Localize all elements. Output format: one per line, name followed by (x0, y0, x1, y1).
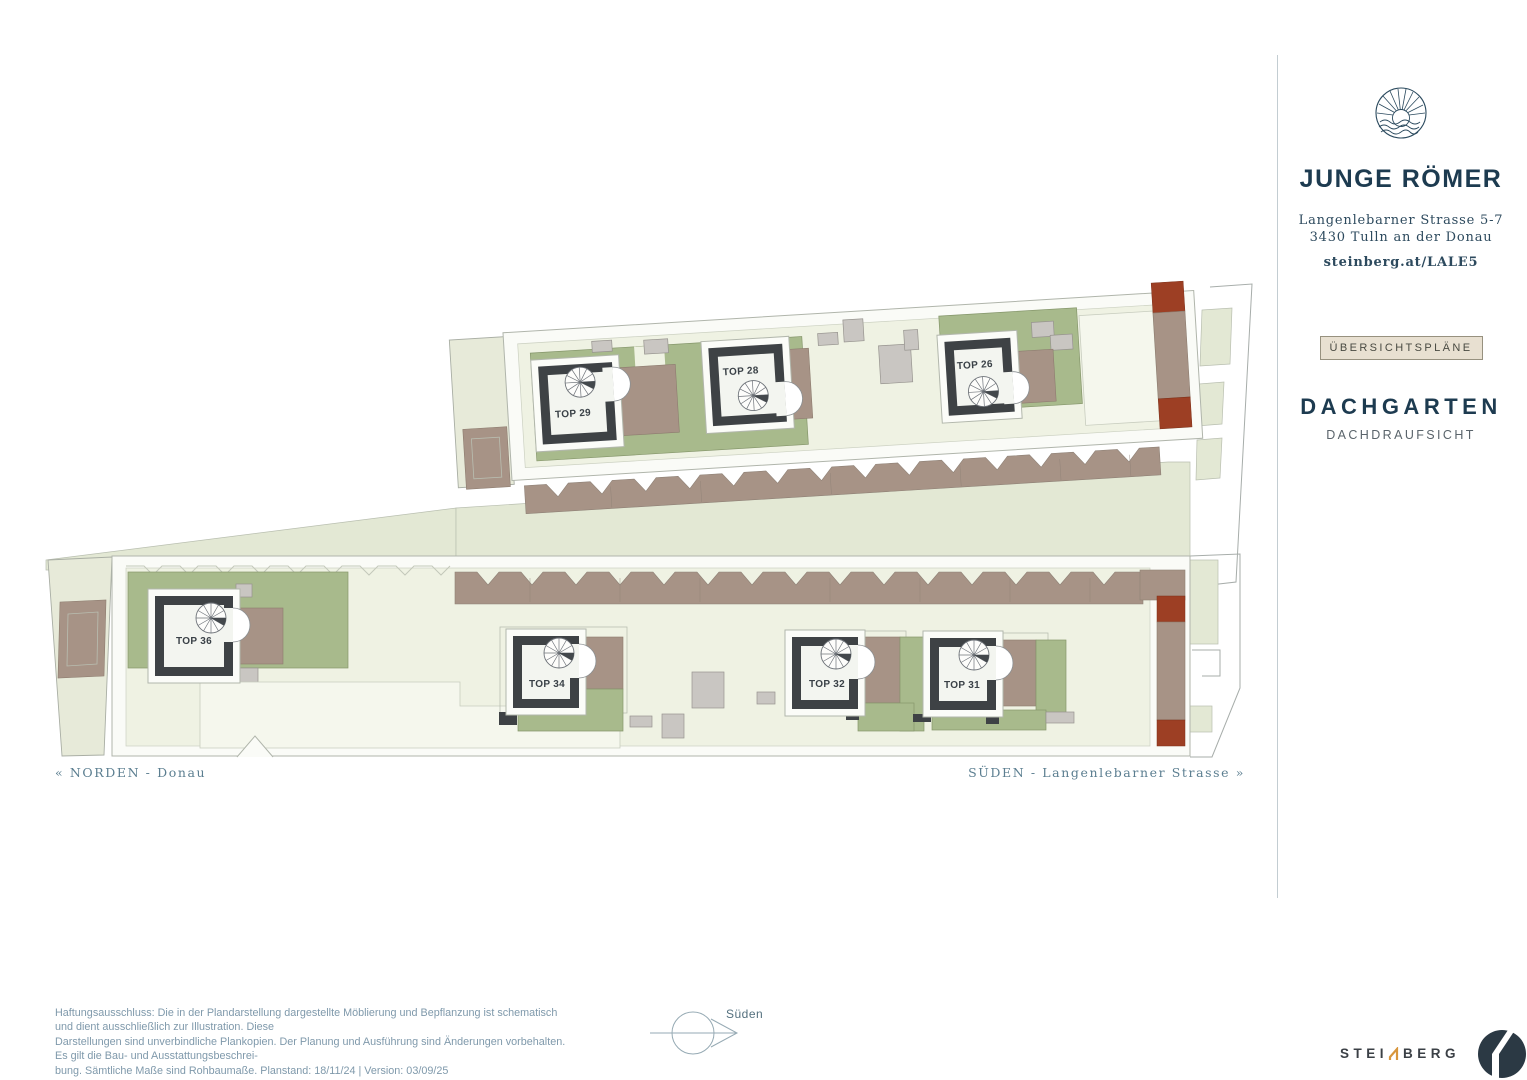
unit-label: TOP 28 (723, 365, 760, 378)
floor-plan-area: TOP 29 TOP 28 TOP 26 (0, 0, 1277, 1080)
page-title: DACHGARTEN (1295, 394, 1507, 420)
disclaimer-line: Darstellungen sind unverbindliche Planko… (55, 1035, 575, 1064)
stairhouse-top31: TOP 31 (923, 631, 1013, 717)
sidebar: JUNGE RÖMER Langenlebarner Strasse 5-7 3… (1295, 80, 1507, 442)
brand-name: JUNGE RÖMER (1295, 165, 1507, 194)
stairhouse-top28: TOP 28 (701, 336, 804, 434)
address-line-2: 3430 Tulln an der Donau (1295, 229, 1507, 246)
spiral-stair-icon (196, 603, 226, 633)
roof-garden-top32 (858, 703, 914, 731)
junge-roemer-logo (1295, 80, 1507, 146)
overview-plans-badge[interactable]: ÜBERSICHTSPLÄNE (1320, 336, 1483, 360)
page-subtitle: DACHDRAUFSICHT (1295, 428, 1507, 442)
direction-label-north: « NORDEN - Donau (55, 765, 206, 780)
disclaimer: Haftungsausschluss: Die in der Plandarst… (55, 1006, 575, 1078)
sidebar-divider (1277, 55, 1278, 898)
chimney (1158, 397, 1192, 429)
stairhouse-top26: TOP 26 (937, 330, 1031, 423)
chimney (1157, 596, 1185, 622)
steinberg-circle-icon (1476, 1028, 1527, 1080)
spiral-stair-icon (959, 640, 989, 670)
steinberg-n-icon (1388, 1047, 1401, 1061)
stairhouse-top36: TOP 36 (148, 589, 250, 683)
unit-label: TOP 32 (809, 679, 845, 690)
floor-plan-drawing: TOP 29 TOP 28 TOP 26 (0, 0, 1277, 1080)
stairhouse-top29: TOP 29 (531, 354, 634, 452)
unit-label: TOP 26 (957, 359, 994, 372)
stairhouse-top32: TOP 32 (785, 630, 875, 716)
chimney (1151, 281, 1185, 313)
disclaimer-line: Haftungsausschluss: Die in der Plandarst… (55, 1006, 575, 1035)
spiral-stair-icon (821, 639, 851, 669)
disclaimer-line: bung. Sämtliche Maße sind Rohbaumaße. Pl… (55, 1064, 575, 1078)
chimney (1157, 720, 1185, 746)
unit-label: TOP 31 (944, 680, 980, 691)
compass-label: Süden (726, 1007, 763, 1021)
unit-label: TOP 34 (529, 679, 565, 690)
steinberg-text-left: STEI (1340, 1030, 1388, 1078)
address-line-1: Langenlebarner Strasse 5-7 (1295, 212, 1507, 229)
lower-building: TOP 36 TOP 34 TOP 32 (112, 556, 1190, 757)
compass: Süden (650, 1007, 763, 1054)
brand-website[interactable]: steinberg.at/LALE5 (1295, 255, 1507, 270)
stairhouse-top34: TOP 34 (506, 629, 596, 715)
direction-label-south: SÜDEN - Langenlebarner Strasse » (968, 765, 1245, 780)
spiral-stair-icon (544, 638, 574, 668)
unit-label: TOP 36 (176, 636, 212, 647)
steinberg-logo: STEI BERG (1340, 1028, 1527, 1080)
brand-address: Langenlebarner Strasse 5-7 3430 Tulln an… (1295, 212, 1507, 246)
unit-label: TOP 29 (555, 408, 592, 421)
left-parcel (48, 557, 112, 756)
steinberg-text-right: BERG (1403, 1030, 1460, 1078)
